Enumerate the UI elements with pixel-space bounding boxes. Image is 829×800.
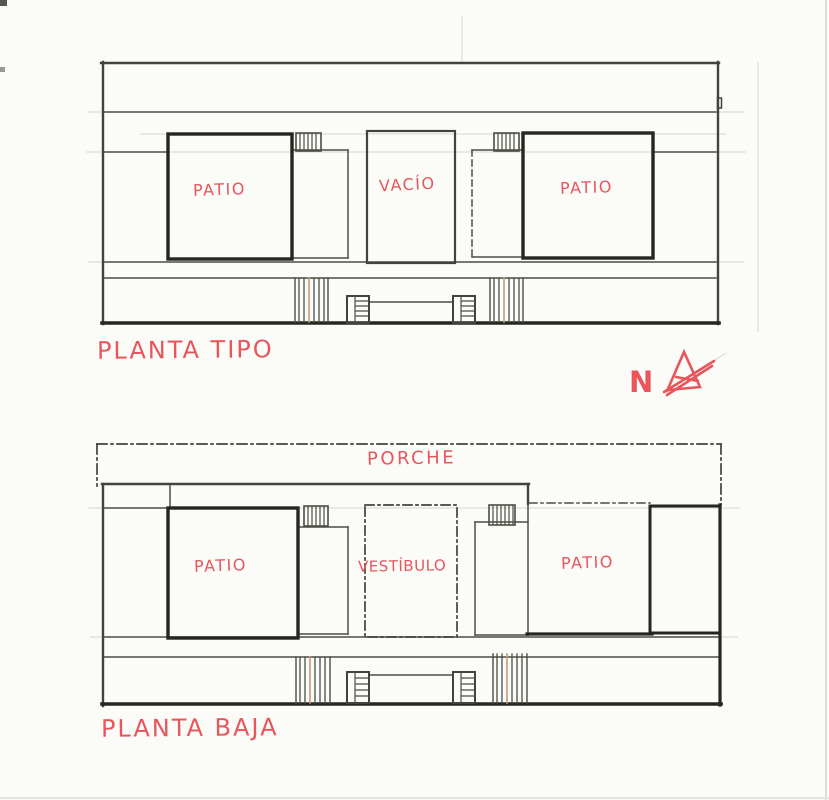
planta-tipo-wall-notch — [718, 98, 722, 108]
planta-baja-hatch-left — [296, 657, 330, 703]
planta-tipo-left-patio-label: PATIO — [193, 181, 246, 199]
planta-baja-drawing — [97, 444, 721, 706]
planta-baja-title: PLANTA BAJA — [101, 715, 279, 741]
planta-tipo-void-walls — [367, 131, 455, 263]
planta-baja-hatch-right — [493, 654, 527, 703]
planta-baja-left-patio-label: PATIO — [194, 557, 247, 575]
planta-tipo-title: PLANTA TIPO — [97, 337, 274, 363]
planta-tipo-stair-right — [494, 133, 519, 151]
floor-plan-drawing — [0, 0, 829, 800]
planta-baja-right-room-walls — [650, 506, 719, 633]
planta-tipo-hatch-left — [295, 278, 328, 322]
planta-baja-stair-left — [304, 506, 328, 526]
planta-tipo-void-label: VACÍO — [379, 176, 436, 195]
planta-baja-porch-label: PORCHE — [367, 449, 456, 469]
planta-baja-entry-steps-right — [453, 672, 475, 703]
planta-tipo-hatch-right — [490, 278, 523, 322]
pencil-guide-lines — [86, 16, 758, 637]
planta-tipo-stair-left — [296, 133, 321, 151]
planta-baja-entry-steps-left — [347, 672, 369, 703]
planta-tipo-entry-steps-right — [453, 296, 475, 323]
planta-tipo-partitions — [104, 112, 716, 302]
north-label: N — [629, 368, 653, 397]
planta-baja-partitions — [104, 485, 718, 675]
planta-baja-right-patio-label: PATIO — [561, 554, 614, 572]
planta-tipo-entry-steps-left — [347, 296, 369, 323]
sketch-page: PATIO VACÍO PATIO PLANTA TIPO N PORCHE P… — [0, 0, 829, 800]
scan-artifacts — [0, 0, 829, 800]
planta-baja-vestibule-label: VESTÍBULO — [358, 558, 446, 575]
north-arrow-icon — [664, 352, 714, 395]
planta-tipo-right-patio-label: PATIO — [560, 179, 613, 197]
